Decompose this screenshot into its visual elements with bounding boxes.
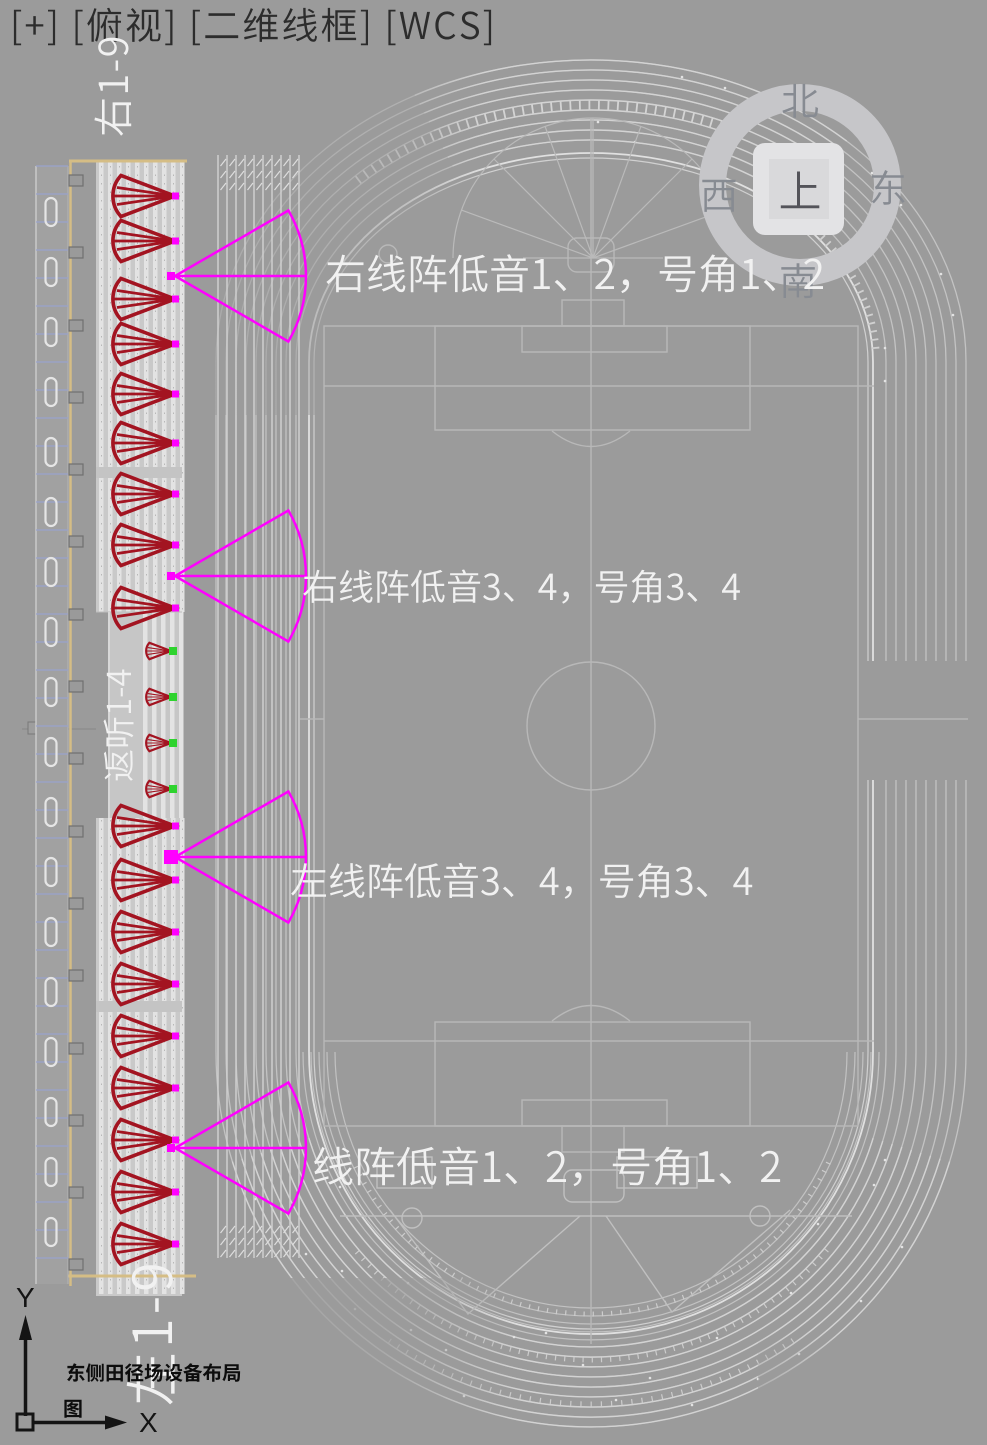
svg-text:X: X <box>139 1407 158 1438</box>
svg-text:Y: Y <box>16 1282 35 1313</box>
